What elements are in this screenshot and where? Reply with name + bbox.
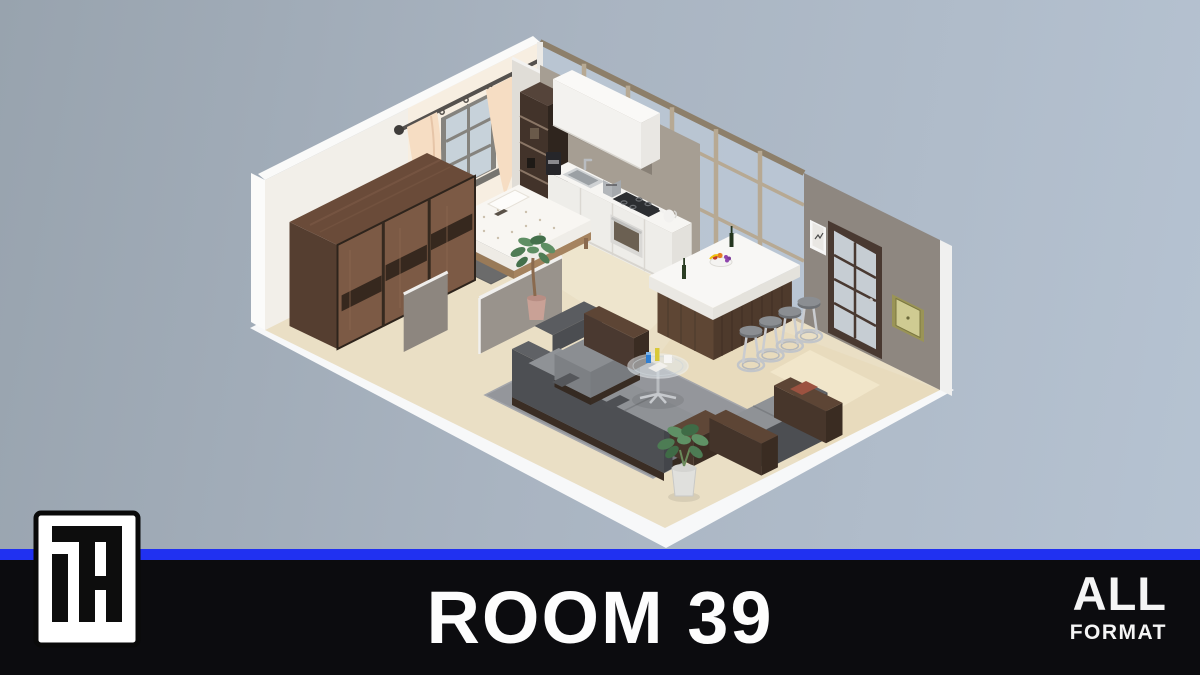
coffee-machine: [546, 152, 561, 175]
thumbnail-card: ROOM 39 ALL FORMAT: [0, 0, 1200, 675]
title: ROOM 39: [0, 560, 1200, 675]
logo-monogram-TH: [52, 526, 122, 622]
format-badge-line1: ALL: [1070, 570, 1167, 617]
format-badge: ALL FORMAT: [1070, 570, 1167, 643]
channel-logo: [33, 510, 141, 648]
format-badge-line2: FORMAT: [1070, 622, 1167, 643]
accent-divider: [0, 549, 1200, 560]
